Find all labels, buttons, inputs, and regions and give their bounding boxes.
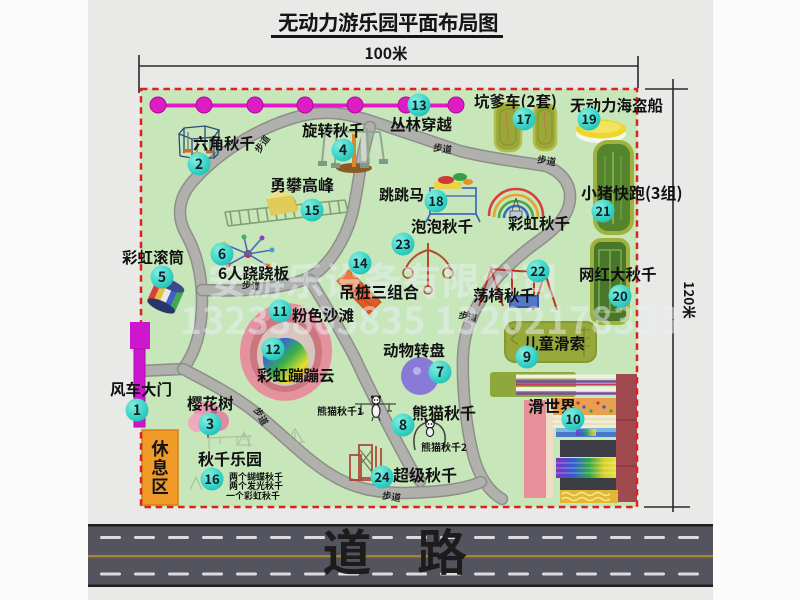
svg-text:丛林穿越: 丛林穿越 (390, 113, 453, 135)
svg-text:4: 4 (339, 140, 347, 160)
svg-text:100米: 100米 (365, 42, 408, 64)
svg-text:3: 3 (206, 414, 214, 434)
svg-text:彩虹蹦蹦云: 彩虹蹦蹦云 (257, 364, 335, 386)
svg-text:一个彩虹秋千: 一个彩虹秋千 (226, 489, 280, 502)
svg-text:步道: 步道 (432, 140, 453, 157)
svg-text:无动力游乐园平面布局图: 无动力游乐园平面布局图 (278, 6, 498, 36)
svg-text:5: 5 (158, 267, 166, 287)
svg-text:22: 22 (530, 261, 545, 280)
svg-text:粉色沙滩: 粉色沙滩 (292, 304, 354, 326)
svg-text:路: 路 (417, 514, 467, 585)
svg-text:动物转盘: 动物转盘 (383, 339, 445, 361)
svg-text:步道: 步道 (381, 488, 402, 505)
svg-text:熊猫秋千: 熊猫秋千 (412, 400, 476, 424)
svg-text:6人跷跷板: 6人跷跷板 (218, 262, 290, 284)
svg-text:120米: 120米 (680, 281, 700, 319)
svg-text:13233805835 13202178333: 13233805835 13202178333 (180, 291, 680, 345)
svg-text:吊桩三组合: 吊桩三组合 (339, 279, 419, 303)
svg-text:彩虹秋千: 彩虹秋千 (508, 212, 570, 234)
svg-text:16: 16 (204, 469, 220, 488)
svg-text:13: 13 (411, 95, 426, 114)
svg-text:17: 17 (516, 109, 532, 128)
svg-text:樱花树: 樱花树 (187, 392, 234, 414)
svg-text:23: 23 (395, 234, 410, 253)
svg-text:14: 14 (352, 253, 368, 272)
svg-text:泡泡秋千: 泡泡秋千 (411, 215, 473, 237)
svg-text:21: 21 (595, 201, 610, 220)
svg-text:10: 10 (565, 409, 581, 428)
svg-text:六角秋千: 六角秋千 (193, 132, 255, 154)
svg-text:12: 12 (265, 339, 280, 358)
svg-text:风车大门: 风车大门 (110, 378, 172, 400)
svg-text:6: 6 (218, 244, 226, 264)
svg-text:19: 19 (581, 109, 596, 128)
svg-text:7: 7 (436, 362, 444, 382)
svg-text:9: 9 (523, 347, 531, 367)
svg-text:道: 道 (322, 514, 371, 585)
svg-text:1: 1 (133, 400, 141, 420)
svg-text:勇攀高峰: 勇攀高峰 (270, 172, 334, 196)
svg-text:彩虹滚筒: 彩虹滚筒 (122, 246, 184, 268)
svg-text:24: 24 (374, 467, 390, 486)
svg-text:11: 11 (272, 301, 287, 320)
svg-text:旋转秋千: 旋转秋千 (302, 119, 364, 141)
svg-text:跳跳马: 跳跳马 (379, 184, 424, 205)
svg-text:区: 区 (151, 474, 169, 499)
svg-text:荡椅秋千: 荡椅秋千 (473, 284, 535, 306)
svg-text:熊猫秋千1: 熊猫秋千1 (317, 403, 363, 418)
svg-text:熊猫秋千2: 熊猫秋千2 (421, 439, 467, 454)
svg-text:超级秋千: 超级秋千 (393, 462, 457, 486)
svg-text:8: 8 (399, 415, 407, 435)
svg-text:15: 15 (304, 200, 319, 219)
svg-text:秋千乐园: 秋千乐园 (198, 446, 262, 470)
svg-text:18: 18 (428, 191, 444, 210)
svg-text:20: 20 (612, 286, 628, 305)
svg-text:2: 2 (195, 154, 203, 174)
svg-text:网红大秋千: 网红大秋千 (579, 263, 657, 285)
